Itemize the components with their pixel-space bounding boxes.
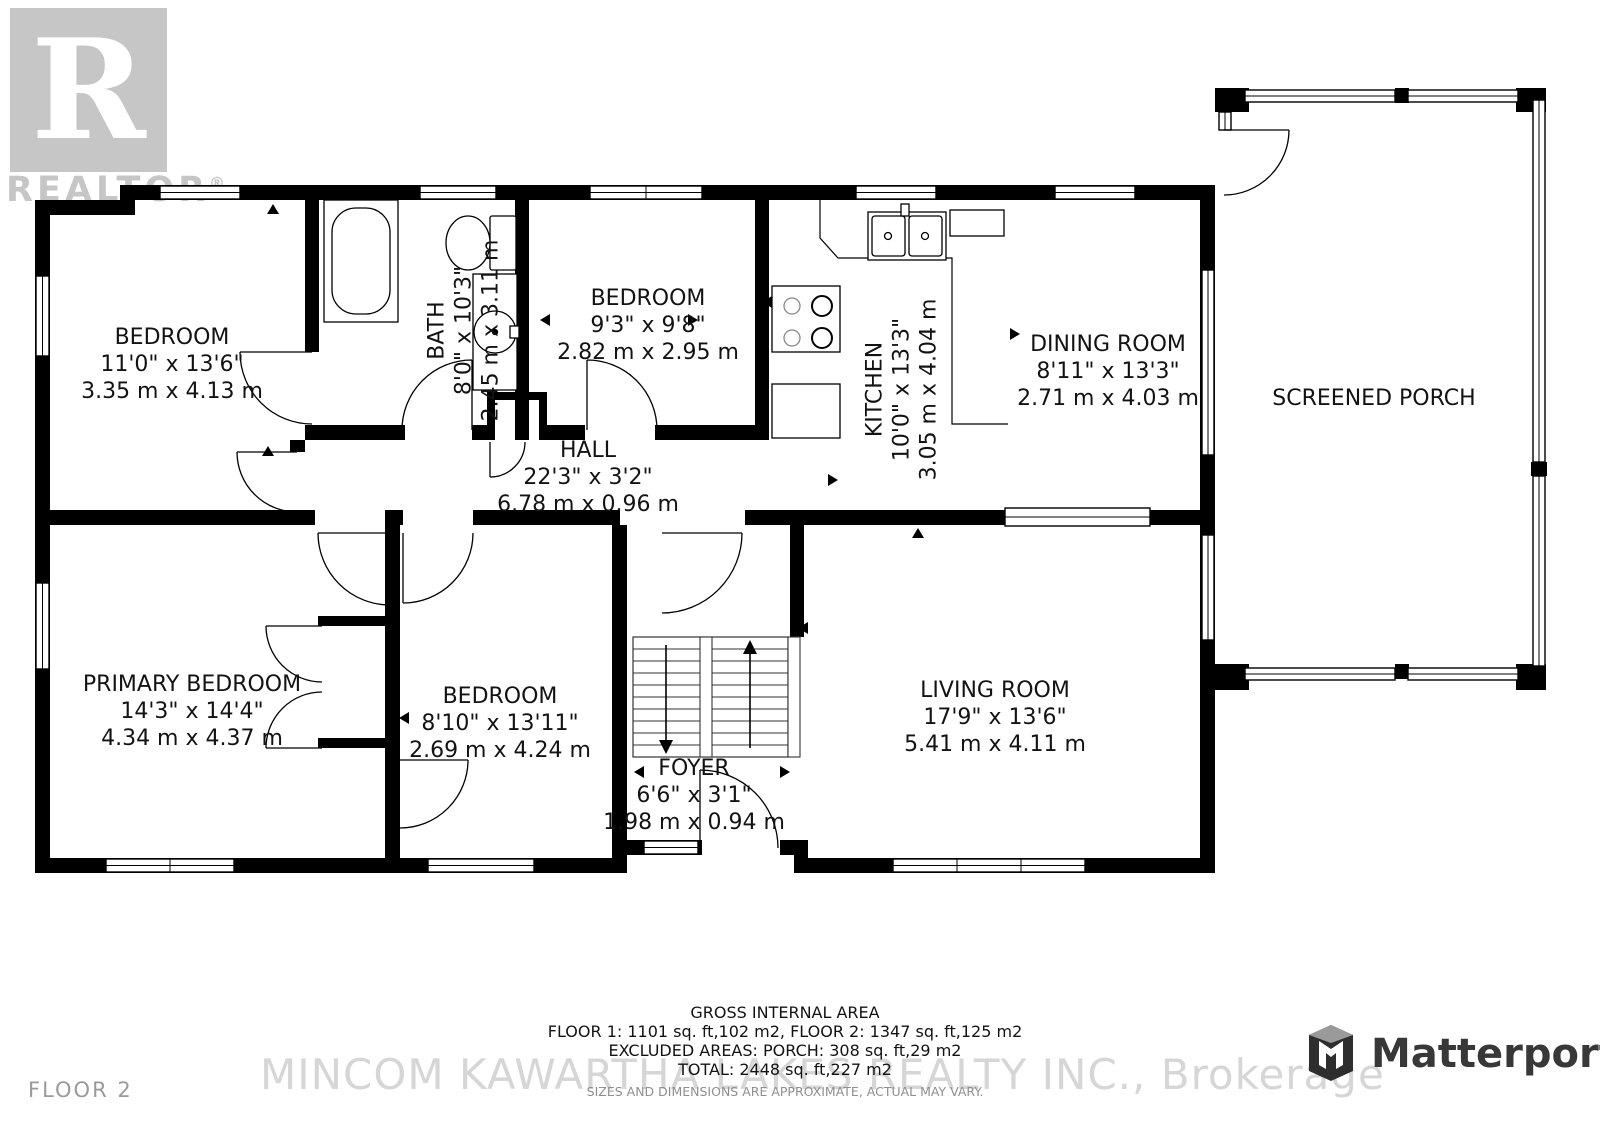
matterport-wordmark: Matterport — [1371, 1031, 1600, 1077]
area-summary-title: GROSS INTERNAL AREA — [420, 1003, 1150, 1022]
room-label-screened-porch: SCREENED PORCH — [1224, 385, 1524, 412]
floor-number-label: FLOOR 2 — [28, 1078, 133, 1102]
area-summary-floors: FLOOR 1: 1101 sq. ft,102 m2, FLOOR 2: 13… — [420, 1022, 1150, 1041]
room-label-hall: HALL 22'3" x 3'2" 6.78 m x 0.96 m — [458, 437, 718, 518]
room-label-bedroom-bottom: BEDROOM 8'10" x 13'11" 2.69 m x 4.24 m — [370, 683, 630, 764]
room-label-foyer: FOYER 6'6" x 3'1" 1.98 m x 0.94 m — [574, 755, 814, 836]
staircase — [633, 637, 800, 757]
disclaimer: SIZES AND DIMENSIONS ARE APPROXIMATE, AC… — [420, 1082, 1150, 1101]
area-summary: GROSS INTERNAL AREA FLOOR 1: 1101 sq. ft… — [420, 1003, 1150, 1101]
floor-plan-svg — [0, 0, 1600, 1132]
room-label-primary-bedroom: PRIMARY BEDROOM 14'3" x 14'4" 4.34 m x 4… — [32, 671, 352, 752]
area-summary-excluded: EXCLUDED AREAS: PORCH: 308 sq. ft,29 m2 — [420, 1041, 1150, 1060]
bathtub-icon — [324, 200, 398, 322]
fridge-icon — [950, 210, 1004, 236]
area-summary-total: TOTAL: 2448 sq. ft,227 m2 — [420, 1060, 1150, 1079]
stove-icon — [772, 286, 840, 352]
room-label-bath: BATH 8'0" x 10'3" 2.45 m x 3.11 m — [424, 211, 505, 451]
floor-plan-page: R REALTOR® MINCOM KAWARTHA LAKES REALTY … — [0, 0, 1600, 1132]
room-label-living-room: LIVING ROOM 17'9" x 13'6" 5.41 m x 4.11 … — [845, 677, 1145, 758]
matterport-logo: Matterport — [1303, 1025, 1600, 1083]
room-label-dining-room: DINING ROOM 8'11" x 13'3" 2.71 m x 4.03 … — [968, 331, 1248, 412]
room-label-bedroom-top-left: BEDROOM 11'0" x 13'6" 3.35 m x 4.13 m — [42, 324, 302, 405]
cabinet-icon — [772, 384, 840, 438]
matterport-icon — [1303, 1025, 1359, 1083]
room-label-kitchen: KITCHEN 10'0" x 13'3" 3.05 m x 4.04 m — [862, 240, 943, 540]
room-label-bedroom-top: BEDROOM 9'3" x 9'8" 2.82 m x 2.95 m — [528, 285, 768, 366]
